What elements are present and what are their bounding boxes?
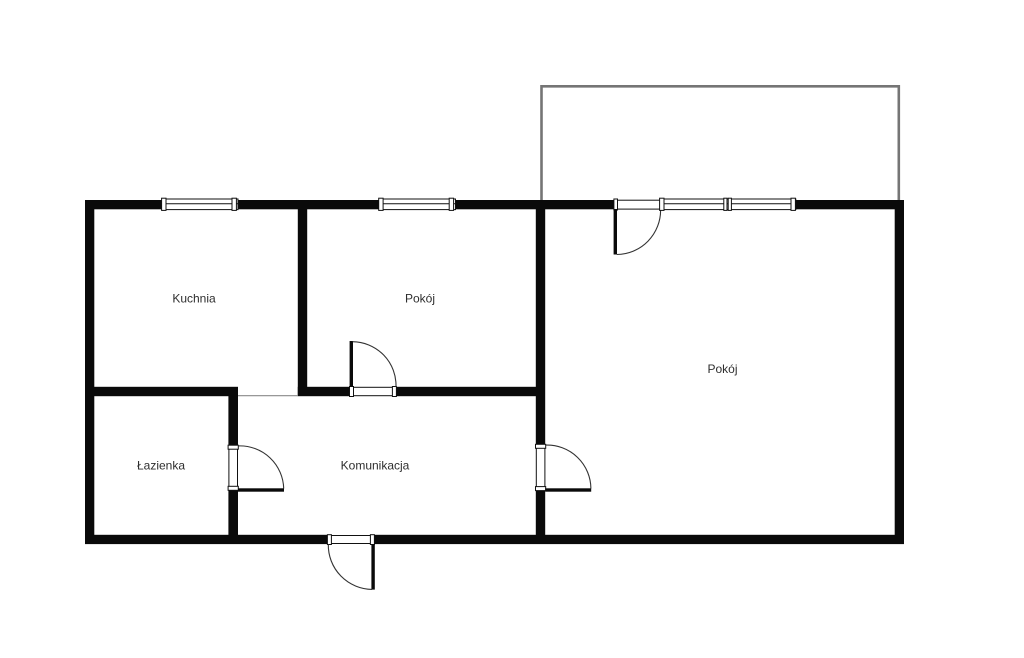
svg-text:Pokój: Pokój xyxy=(405,292,435,306)
svg-text:Pokój: Pokój xyxy=(707,362,737,376)
svg-text:Łazienka: Łazienka xyxy=(137,459,185,473)
svg-text:Kuchnia: Kuchnia xyxy=(172,292,216,306)
svg-text:Komunikacja: Komunikacja xyxy=(341,459,410,473)
